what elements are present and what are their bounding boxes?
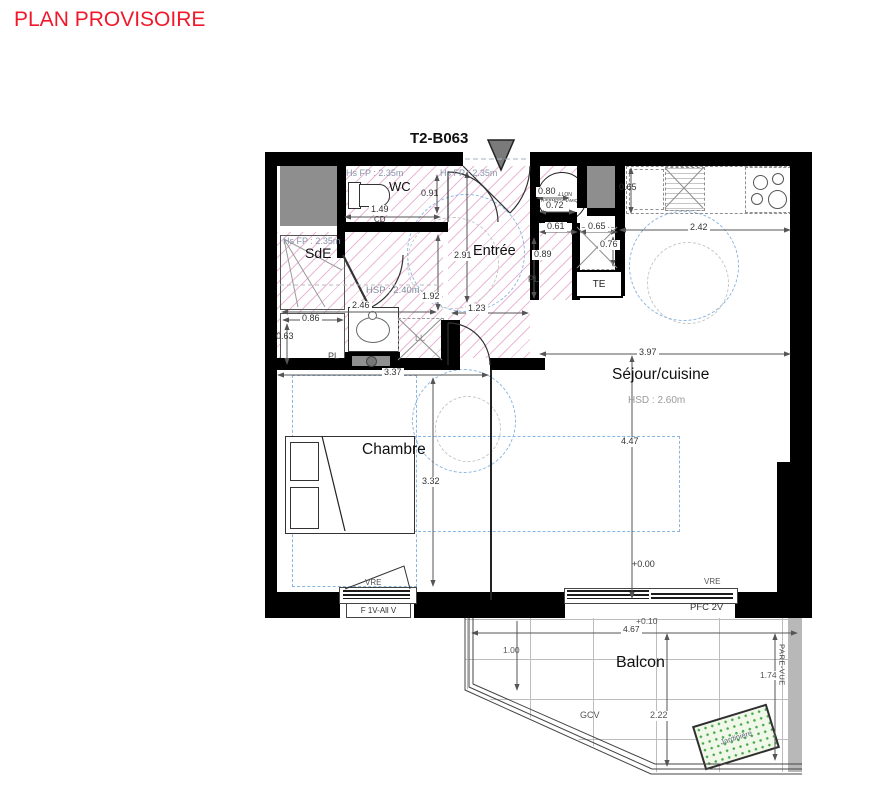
dim-ballon-a: 0.80 xyxy=(536,187,558,197)
duct-shaft-wc xyxy=(280,166,337,226)
sejour-level: +0.00 xyxy=(632,560,655,570)
dim-wc-depth: 0.91 xyxy=(421,189,439,199)
washbasin-faucet xyxy=(368,311,377,320)
wall xyxy=(530,152,812,166)
page-title: PLAN PROVISOIRE xyxy=(14,8,205,31)
window-chambre-shutter: VRE xyxy=(365,579,381,588)
wall xyxy=(587,208,625,216)
dim-balcon-c: 1.74 xyxy=(759,671,778,680)
entree-ceiling-note: Hs FP : 2.35m xyxy=(440,169,497,178)
wall xyxy=(414,592,565,618)
dim-hall-b: 0.65 xyxy=(586,222,608,232)
planter-label: Jardinière xyxy=(719,728,753,746)
pillow xyxy=(290,442,319,481)
dim-wc-door: CD xyxy=(374,216,386,225)
privacy-screen xyxy=(788,618,802,772)
wall xyxy=(530,223,539,300)
wall xyxy=(337,166,346,232)
lot-number: T2-B063 xyxy=(410,131,468,148)
dim-balcon-b: 2.22 xyxy=(648,711,670,721)
turning-circle-cuisine-alt xyxy=(647,242,729,324)
dim-balcon-width: 4.67 xyxy=(621,625,642,634)
burner-icon xyxy=(753,175,768,190)
wc-ceiling-note: Hs FP : 2.35m xyxy=(346,169,403,178)
window-sejour-glazing-left xyxy=(567,590,649,599)
electrical-panel: TE xyxy=(575,270,623,298)
dim-balcon-a: 1.00 xyxy=(503,646,520,655)
room-label-sejour: Séjour/cuisine xyxy=(612,366,709,383)
dim-sde-depth: 1.92 xyxy=(420,292,442,302)
burner-icon xyxy=(751,193,763,205)
floor-plan: PLAN PROVISOIRE T2-B063 LL BALLON THERMO… xyxy=(0,0,887,800)
hatch-hall-closet xyxy=(540,223,572,300)
kitchen-sink xyxy=(665,167,705,211)
dim-hall-a: 0.61 xyxy=(545,222,567,232)
dim-chambre-width: 3.37 xyxy=(382,368,404,378)
dim-sejour-width: 3.97 xyxy=(637,348,659,358)
dim-kitchen-depth: 0.65 xyxy=(619,183,637,193)
dim-chambre-length: 3.32 xyxy=(420,477,442,487)
wall xyxy=(265,152,463,166)
window-sejour-shutter: VRE xyxy=(704,578,720,587)
sde-hsp-note: HSP : 2.40m xyxy=(366,286,420,296)
balcony-railing-label: GCV xyxy=(580,711,600,721)
washing-machine-label: LL xyxy=(398,318,442,360)
dim-sde-width: 2.46 xyxy=(350,301,372,311)
electrical-panel-label: TE xyxy=(593,279,606,290)
wall xyxy=(490,358,545,370)
wall xyxy=(337,222,448,232)
dim-hall-d: 0.89 xyxy=(532,250,554,260)
window-chambre-glazing xyxy=(343,590,410,599)
closet-hall-label: PL xyxy=(528,275,539,285)
window-sejour-glazing-right xyxy=(651,593,733,601)
dim-kitchen-width: 2.42 xyxy=(688,223,710,233)
room-label-chambre: Chambre xyxy=(362,441,426,458)
duct-shaft-hall xyxy=(587,165,615,208)
pillow xyxy=(290,487,319,529)
room-label-sde: SdE xyxy=(305,246,331,261)
burner-icon xyxy=(768,190,787,209)
privacy-screen-label: PARE-VUE xyxy=(777,644,785,686)
wall xyxy=(790,152,812,470)
dim-pl-depth: 0.63 xyxy=(276,332,294,342)
room-label-balcon: Balcon xyxy=(616,654,665,672)
window-chambre-type: F 1V-All V xyxy=(361,606,397,615)
closet-sde-label: PL xyxy=(328,352,339,362)
window-chambre-tag: F 1V-All V xyxy=(346,603,411,618)
room-label-wc: WC xyxy=(389,180,411,194)
sejour-hsd-note: HSD : 2.60m xyxy=(628,395,685,406)
window-sejour-type: PFC 2V xyxy=(690,603,723,613)
dim-entree-length: 2.91 xyxy=(452,251,474,261)
wall xyxy=(265,592,340,618)
wall xyxy=(577,165,587,208)
dim-wc-width: 1.49 xyxy=(369,205,391,215)
dim-sejour-length: 4.47 xyxy=(619,437,641,447)
dim-sde-passage: 1.23 xyxy=(466,304,488,314)
wall xyxy=(265,152,277,618)
towel-radiator-knob xyxy=(366,356,377,367)
dim-hall-c: 0.76 xyxy=(598,240,620,250)
dim-ballon-b: 0.72 xyxy=(544,201,566,211)
wall xyxy=(441,320,460,370)
burner-icon xyxy=(772,173,784,185)
accessibility-zone-sejour xyxy=(413,436,680,532)
room-label-entree: Entrée xyxy=(473,244,516,260)
dim-pl-width: 0.86 xyxy=(300,314,322,324)
wall xyxy=(735,592,812,618)
washbasin-bowl xyxy=(356,317,390,343)
